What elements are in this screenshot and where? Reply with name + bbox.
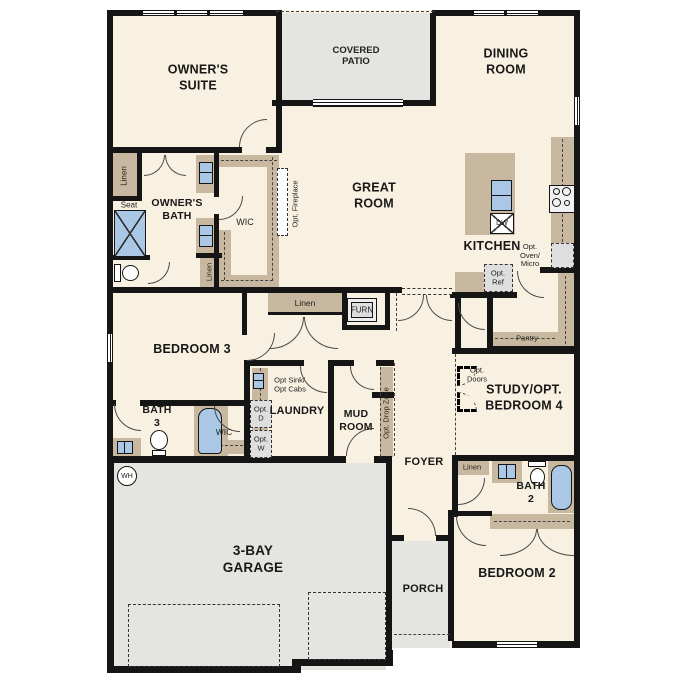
label-opt-ref: Opt. Ref	[491, 269, 505, 286]
window-mullion	[174, 10, 177, 16]
label-owners-bath: OWNER'S BATH	[151, 197, 202, 223]
label-linen-owner: Linen	[120, 166, 129, 186]
wall-bedroom2-left	[448, 510, 454, 641]
label-seat: Seat	[121, 200, 137, 209]
opening-mud-foyer	[346, 456, 374, 463]
label-bedroom3: BEDROOM 3	[153, 342, 231, 358]
wall-pantry-left	[487, 292, 493, 350]
laundry-optional-sink	[253, 373, 264, 389]
optional-oven-micro	[551, 243, 574, 268]
wall-garage-bottom-left	[107, 666, 299, 673]
wall-study-bottom	[452, 455, 574, 461]
wall-hall-top	[110, 287, 402, 293]
patio-edge-dashed	[276, 11, 434, 12]
label-opt-sink-cabs: Opt Sink/ Opt Cabs	[274, 376, 306, 393]
bath3-toilet	[152, 450, 166, 456]
label-owners-suite: OWNER'S SUITE	[168, 62, 229, 93]
label-pantry: Pantry	[516, 335, 538, 344]
wall-left-garage	[107, 460, 114, 673]
study-optional-wall	[455, 354, 456, 455]
bath2-tub	[551, 465, 572, 510]
label-garage: 3-BAY GARAGE	[223, 543, 283, 577]
wall-furn-bottom	[342, 325, 390, 330]
burner	[553, 188, 560, 195]
label-opt-w: Opt. W	[254, 435, 268, 452]
patio-sliding-door	[313, 99, 403, 107]
burner	[564, 200, 570, 206]
wall-porch-top-2	[436, 535, 454, 541]
wall-garage-right	[386, 460, 392, 652]
owners-toilet	[122, 265, 139, 281]
owners-toilet	[114, 264, 121, 282]
garage-door-opening-2	[308, 592, 386, 660]
wall-garage-corner	[386, 650, 393, 666]
owners-sink-1	[199, 162, 213, 184]
label-opt-d: Opt. D	[254, 405, 268, 422]
cased-opening-great-foyer	[402, 288, 452, 295]
wall-garage-bottom-right	[294, 659, 392, 666]
optional-fireplace	[277, 168, 288, 236]
label-mud-room: MUD ROOM	[339, 408, 372, 434]
wall-wic-linen-top	[196, 253, 222, 258]
label-linen-hall: Linen	[295, 299, 316, 309]
kitchen-cabinet	[455, 272, 484, 292]
floor-plan: WH OWNER'S SUITE COVERED PATIO DINING RO…	[0, 0, 687, 687]
label-covered-patio: COVERED PATIO	[333, 46, 380, 68]
window-suite-top	[143, 10, 243, 16]
label-bath2: BATH 2	[516, 480, 545, 506]
bath2-toilet	[528, 461, 546, 467]
mudroom-dashed-boundary	[394, 363, 395, 456]
water-heater: WH	[117, 466, 137, 486]
label-kitchen: KITCHEN	[464, 239, 521, 255]
island-sink	[491, 180, 512, 211]
pantry-shelf-line	[565, 276, 566, 344]
wall-left-upper	[107, 10, 113, 463]
wall-suite-bottom	[110, 147, 242, 153]
bedroom2-closet-rod	[494, 521, 570, 522]
wall-bedroom3-stub	[242, 293, 247, 335]
bath3-toilet	[150, 430, 168, 450]
window-mullion	[207, 10, 210, 16]
label-study: STUDY/OPT. BEDROOM 4	[485, 382, 563, 413]
wic-shelf-line	[224, 232, 225, 280]
wall-mud-top-2	[376, 360, 394, 366]
label-linen-wic: Linen	[205, 263, 214, 281]
wall-laundry-right	[328, 360, 334, 460]
label-bedroom2: BEDROOM 2	[478, 566, 556, 582]
pantry-shelf-right	[558, 273, 574, 346]
label-linen-bath2: Linen	[463, 464, 481, 473]
label-dw: DW	[496, 220, 508, 228]
foyer-dashed-boundary	[396, 293, 397, 331]
bath3-sink	[117, 441, 133, 454]
wall-pantry-corridor	[455, 292, 461, 354]
label-porch: PORCH	[403, 583, 444, 597]
wic-shelf-line	[221, 160, 277, 161]
wall-study-top	[452, 348, 578, 354]
bath2-sink	[498, 464, 516, 479]
label-bath3: BATH 3	[142, 404, 171, 430]
burner	[552, 198, 561, 207]
water-heater-label: WH	[121, 473, 133, 480]
label-great-room: GREAT ROOM	[352, 180, 396, 211]
wall-suite-bottom-stub	[266, 147, 282, 153]
burner	[562, 187, 571, 196]
label-opt-doors: Opt. Doors	[467, 366, 487, 383]
wall-suite-right	[276, 13, 282, 147]
wall-porch-top-1	[386, 535, 404, 541]
window-bedroom2-bottom	[497, 641, 537, 648]
window-dining-right	[574, 97, 580, 125]
label-foyer: FOYER	[405, 456, 444, 470]
label-wic-bed3: WIC	[216, 428, 233, 438]
garage-door-opening-1	[128, 604, 280, 667]
owners-sink-2	[199, 225, 213, 247]
wall-linen-right	[137, 153, 142, 199]
label-furn: FURN	[351, 305, 373, 314]
label-opt-drop-zone: Opt. Drop Zone	[382, 387, 391, 439]
wall-bath-wic-1	[214, 153, 219, 197]
owners-shower	[114, 210, 146, 257]
label-laundry: LAUNDRY	[270, 405, 325, 419]
wic-shelf-line	[221, 280, 273, 281]
label-wic-owner: WIC	[236, 217, 254, 227]
label-dining-room: DINING ROOM	[484, 46, 529, 77]
window-mullion	[504, 10, 507, 16]
wall-laundry-top	[244, 360, 304, 366]
window-bedroom3-left	[107, 334, 113, 362]
porch-edge-dashed	[394, 634, 450, 635]
wall-patio-right	[430, 13, 436, 105]
label-opt-fireplace: Opt. Fireplace	[291, 180, 300, 227]
wic-shelf-line	[272, 157, 273, 281]
label-opt-oven-micro: Opt. Oven/ Micro	[520, 243, 540, 269]
